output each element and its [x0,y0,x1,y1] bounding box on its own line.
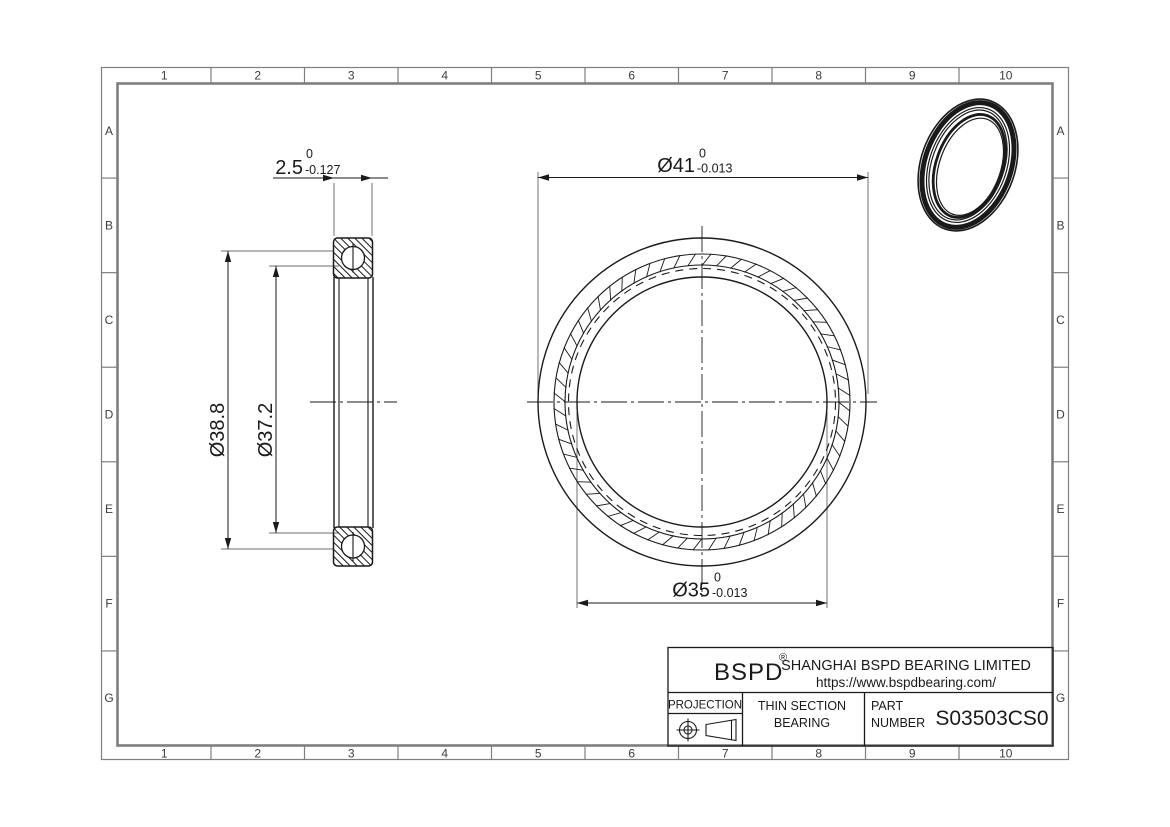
cage-pocket-tick [577,482,592,483]
dimension-outer-race: Ø38.8 [207,251,231,549]
cage-pocket-tick [586,493,601,494]
cage-pocket-tick [827,458,834,471]
dimension-lower-tolerance: -0.127 [305,163,340,177]
grid-row-label-left: D [105,408,114,422]
grid-row-label-left: E [105,502,113,516]
arrowhead [273,522,279,533]
projection-symbol-icon [677,719,737,742]
cage-pocket-tick [647,532,659,540]
dimension-upper-tolerance: 0 [306,147,313,161]
company-website: https://www.bspdbearing.com/ [816,675,996,690]
cage-pocket-tick [803,493,806,508]
cage-pocket-tick [793,503,794,518]
grid-row-label-right: B [1056,218,1064,232]
cage-pocket-tick [693,539,702,551]
cage-pocket-tick [622,277,623,292]
cage-pocket-tick [588,307,592,321]
grid-col-label-top: 5 [535,69,542,83]
product-name-line1: THIN SECTION [758,699,846,713]
dimension-upper-tolerance: 0 [699,147,706,161]
cage-pocket-tick [838,416,849,426]
grid-col-label-top: 1 [161,69,168,83]
grid-col-label-top: 7 [722,69,729,83]
grid-row-label-right: F [1057,597,1064,611]
grid-col-label-top: 2 [254,69,261,83]
arrowhead [225,538,231,549]
cage-pocket-tick [838,388,851,396]
cage-pocket-tick [578,320,584,334]
isometric-bearing-view [901,85,1036,245]
dimension-lower-tolerance: -0.013 [697,162,732,176]
cage-pocket-tick [662,536,673,546]
cage-pocket-tick [570,333,577,346]
grid-col-label-bottom: 4 [441,747,448,761]
grid-col-label-top: 4 [441,69,448,83]
cage-pocket-tick [708,538,716,551]
dimension-value: Ø38.8 [207,403,229,457]
arrowhead [816,600,827,606]
grid-col-label-bottom: 8 [815,747,822,761]
grid-col-label-top: 6 [628,69,635,83]
cage-pocket-tick [554,393,566,402]
cage-pocket-tick [782,288,796,292]
cage-pocket-tick [836,430,846,441]
part-number-label-line2: NUMBER [871,716,925,730]
cage-pocket-tick [596,503,611,506]
dimension-value: Ø35 [672,580,710,602]
cage-pocket-tick [820,470,826,484]
engineering-drawing-canvas: 1122334455667788991010AABBCCDDEEFFGG 2.5… [0,0,1170,827]
bearing-cross-section [310,238,397,566]
dimension-upper-tolerance: 0 [714,571,721,585]
cage-pocket-tick [598,296,601,311]
part-number-value: S03503CS0 [935,707,1048,730]
dimension-value: Ø41 [657,155,695,177]
cage-pocket-tick [832,444,840,456]
cage-pocket-tick [716,256,726,267]
product-name-line2: BEARING [774,716,830,730]
cage-pocket-tick [782,512,783,527]
cage-pocket-tick [770,278,784,284]
dimension-value: 2.5 [275,157,303,179]
arrowhead [857,174,868,180]
cage-pocket-tick [744,264,756,272]
grid-row-label-right: C [1056,313,1065,327]
grid-col-label-bottom: 10 [999,747,1013,761]
arrowhead [273,266,279,277]
front-view: Ø41 0 -0.013 Ø35 0 -0.013 [527,147,877,609]
cage-pocket-tick [564,347,572,359]
company-logo: BSPD [714,659,783,686]
arrowhead [538,174,549,180]
cage-pocket-tick [607,512,621,516]
grid-row-label-left: C [105,313,114,327]
cage-pocket-tick [803,310,818,311]
grid-col-label-top: 8 [815,69,822,83]
grid-row-label-left: G [104,691,113,705]
grid-row-label-left: F [105,597,112,611]
grid-col-label-bottom: 7 [722,747,729,761]
grid-row-label-right: E [1056,502,1064,516]
company-name: SHANGHAI BSPD BEARING LIMITED [781,658,1031,674]
grid-col-label-bottom: 2 [254,747,261,761]
grid-row-label-right: A [1056,124,1064,138]
grid-row-label-left: B [105,218,113,232]
dimension-outer-diameter: Ø41 0 -0.013 [538,147,868,181]
part-number-label-line1: PART [871,699,904,713]
cage-pocket-tick [793,298,808,301]
cage-pocket-tick [620,520,634,526]
cage-pocket-tick [758,270,771,277]
arrowhead [361,175,372,181]
cage-pocket-tick [610,286,611,301]
cage-pocket-tick [556,377,567,387]
grid-col-label-bottom: 6 [628,747,635,761]
grid-row-label-right: D [1056,408,1065,422]
cage-pocket-tick [812,322,827,323]
arrowhead [577,600,588,606]
cage-pocket-tick [677,538,687,549]
dimension-inner-race: Ø37.2 [255,266,279,533]
dimension-value: Ø37.2 [255,403,277,457]
cage-pocket-tick [554,408,567,416]
dimension-width: 2.5 0 -0.127 [273,147,388,181]
cage-pocket-tick [559,362,569,373]
grid-col-label-top: 3 [348,69,355,83]
cage-pocket-tick [812,482,816,496]
projection-label: PROJECTION [668,700,742,712]
grid-col-label-top: 10 [999,69,1013,83]
grid-col-label-bottom: 9 [909,747,916,761]
title-block: BSPD ® SHANGHAI BSPD BEARING LIMITED htt… [668,648,1053,747]
grid-row-label-right: G [1056,691,1065,705]
grid-col-label-bottom: 5 [535,747,542,761]
grid-col-label-top: 9 [909,69,916,83]
grid-row-label-left: A [105,124,113,138]
grid-col-label-bottom: 1 [161,747,168,761]
cage-pocket-tick [702,254,711,266]
section-view: 2.5 0 -0.127 Ø38.8 Ø37.2 [207,147,397,566]
dimension-lower-tolerance: -0.013 [712,586,747,600]
cage-pocket-tick [839,402,851,411]
cage-pocket-tick [688,254,696,267]
arrowhead [225,251,231,262]
cage-pocket-tick [730,259,741,269]
cage-pocket-tick [633,527,646,534]
grid-col-label-bottom: 3 [348,747,355,761]
drawing-sheet: 1122334455667788991010AABBCCDDEEFFGG 2.5… [0,0,1170,827]
iso-outer-edge [901,85,1036,245]
